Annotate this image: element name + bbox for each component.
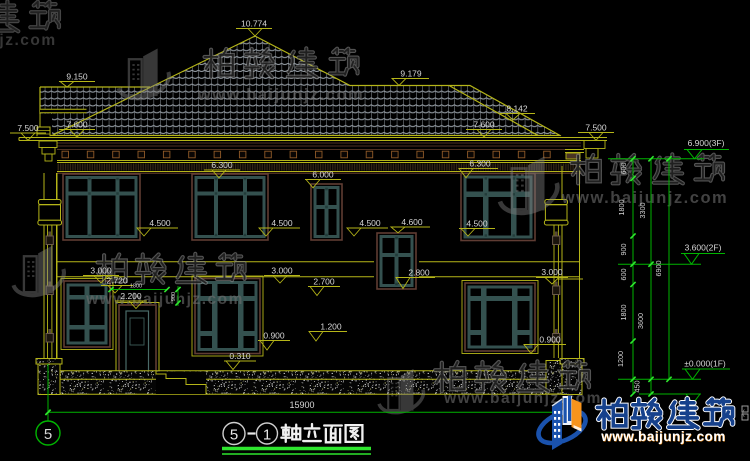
- svg-text:2.800: 2.800: [408, 268, 430, 278]
- svg-text:3.000: 3.000: [271, 266, 293, 276]
- svg-text:1800: 1800: [130, 284, 142, 290]
- svg-text:6.300: 6.300: [469, 159, 491, 169]
- svg-text:0.310: 0.310: [229, 351, 251, 361]
- svg-text:15900: 15900: [289, 400, 314, 410]
- svg-text:www.baijunjz.com: www.baijunjz.com: [600, 429, 726, 444]
- svg-text:7.500: 7.500: [17, 123, 39, 133]
- svg-text:4.500: 4.500: [149, 218, 171, 228]
- svg-text:2.700: 2.700: [313, 277, 335, 287]
- svg-text:450: 450: [633, 381, 642, 393]
- svg-text:7.600: 7.600: [66, 120, 88, 130]
- svg-text:900: 900: [171, 292, 177, 301]
- svg-text:3600: 3600: [636, 313, 645, 329]
- svg-text:900: 900: [619, 244, 628, 256]
- svg-text:600: 600: [619, 163, 628, 175]
- svg-text:±0.000(1F): ±0.000(1F): [684, 359, 726, 369]
- svg-text:9.150: 9.150: [66, 72, 88, 82]
- svg-text:4.500: 4.500: [466, 219, 488, 229]
- svg-text:3.000: 3.000: [90, 266, 112, 276]
- svg-text:2.200: 2.200: [120, 291, 142, 301]
- svg-text:4.600: 4.600: [401, 217, 423, 227]
- svg-text:4.500: 4.500: [271, 218, 293, 228]
- svg-text:5: 5: [230, 427, 238, 444]
- svg-text:3.000: 3.000: [541, 267, 563, 277]
- svg-text:6.900(3F): 6.900(3F): [688, 138, 725, 148]
- svg-text:1800: 1800: [619, 305, 628, 321]
- svg-text:3.600(2F): 3.600(2F): [685, 243, 722, 253]
- svg-text:600: 600: [619, 269, 628, 281]
- svg-text:1.200: 1.200: [320, 322, 342, 332]
- svg-text:www.baijunjz.com: www.baijunjz.com: [85, 291, 244, 308]
- svg-text:2.720: 2.720: [106, 276, 128, 286]
- svg-text:3300: 3300: [638, 203, 647, 219]
- svg-text:0.900: 0.900: [539, 335, 561, 345]
- svg-text:10.774: 10.774: [241, 19, 267, 29]
- svg-text:www.baijunjz.com: www.baijunjz.com: [197, 86, 364, 104]
- svg-text:4.500: 4.500: [359, 218, 381, 228]
- svg-text:1200: 1200: [616, 351, 625, 367]
- svg-text:7.600: 7.600: [473, 120, 495, 130]
- svg-text:8.142: 8.142: [506, 104, 528, 114]
- svg-text:0.900: 0.900: [263, 331, 285, 341]
- svg-text:6.300: 6.300: [211, 160, 233, 170]
- svg-text:1: 1: [263, 427, 271, 444]
- svg-text:9.179: 9.179: [400, 69, 422, 79]
- svg-text:6.000: 6.000: [312, 170, 334, 180]
- svg-text:6900: 6900: [654, 261, 663, 277]
- svg-text:5: 5: [44, 426, 52, 443]
- svg-text:7.500: 7.500: [585, 123, 607, 133]
- svg-text:1800: 1800: [617, 200, 626, 216]
- svg-text:jz.com: jz.com: [0, 32, 57, 49]
